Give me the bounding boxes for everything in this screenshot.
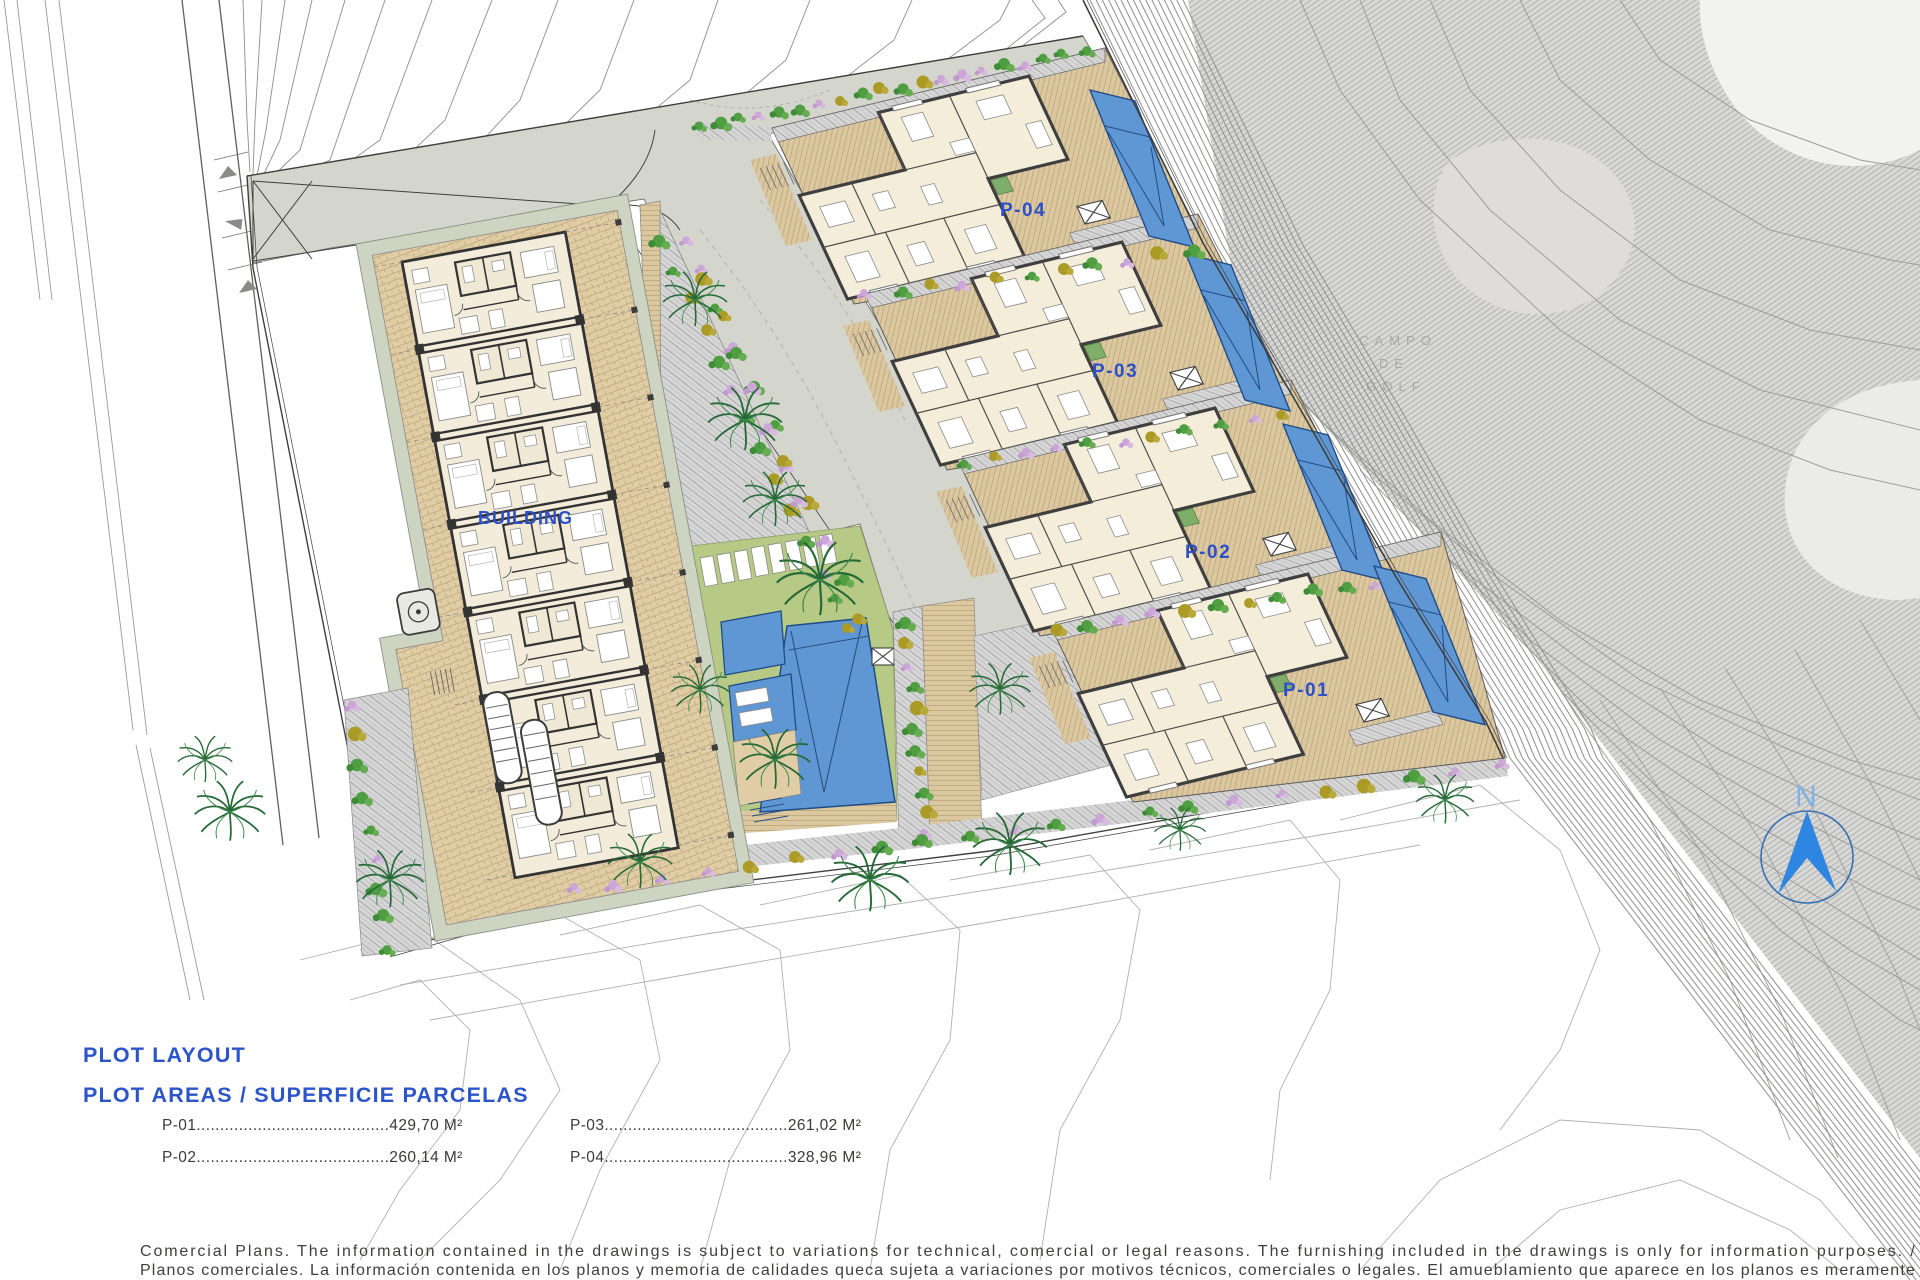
svg-text:P-04: P-04	[1000, 200, 1046, 221]
svg-text:P-01: P-01	[1283, 680, 1329, 701]
svg-text:DE: DE	[1379, 356, 1409, 371]
svg-text:BUILDING: BUILDING	[478, 508, 573, 528]
svg-text:PLOT AREAS / SUPERFICIE PARCEL: PLOT AREAS / SUPERFICIE PARCELAS	[83, 1083, 529, 1107]
svg-text:PLOT LAYOUT: PLOT LAYOUT	[83, 1043, 246, 1067]
svg-text:P-01..........................: P-01....................................…	[162, 1117, 463, 1134]
svg-text:N: N	[1795, 780, 1817, 813]
svg-text:P-04..........................: P-04....................................…	[570, 1149, 861, 1166]
svg-text:P-03: P-03	[1092, 361, 1138, 382]
svg-text:CAMPO: CAMPO	[1359, 333, 1437, 348]
svg-text:P-03..........................: P-03....................................…	[570, 1117, 861, 1134]
svg-text:P-02..........................: P-02....................................…	[162, 1149, 463, 1166]
svg-text:Comercial Plans. The informati: Comercial Plans. The information contain…	[140, 1243, 1915, 1260]
svg-text:P-02: P-02	[1185, 542, 1231, 563]
svg-text:Planos comerciales. La informa: Planos comerciales. La información conte…	[140, 1262, 1915, 1279]
